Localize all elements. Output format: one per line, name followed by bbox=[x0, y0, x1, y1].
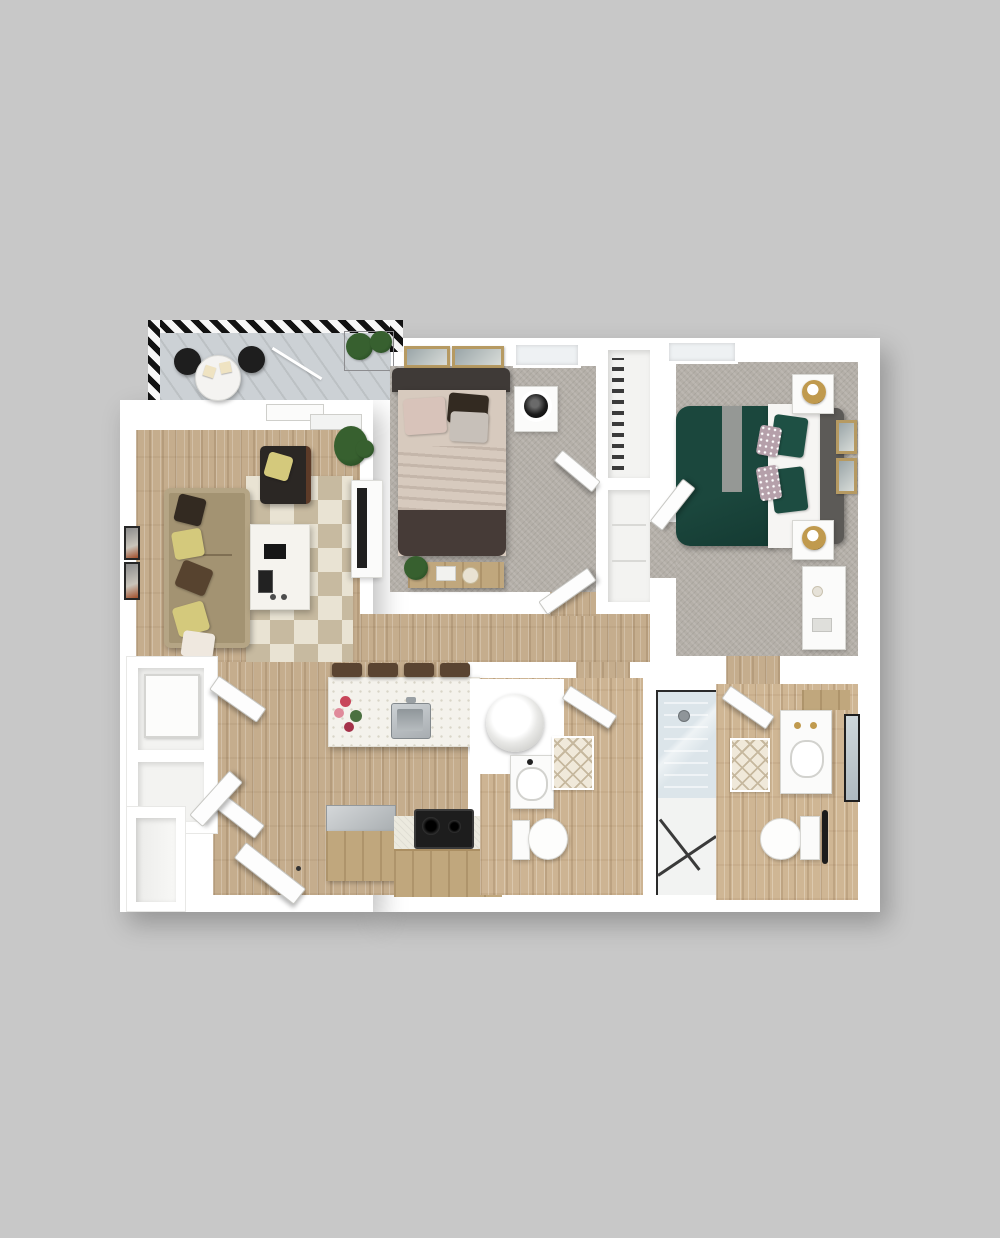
washer-dryer bbox=[486, 694, 544, 752]
bathroom2-door-opening bbox=[726, 656, 780, 686]
bouquet-flower-2 bbox=[334, 708, 344, 718]
refrigerator-top bbox=[326, 805, 396, 833]
bedroom1-lamp bbox=[524, 394, 548, 418]
bar-stool-2 bbox=[368, 663, 398, 677]
bench-plant bbox=[404, 556, 428, 580]
bench-bowl bbox=[462, 567, 479, 584]
shower-entry-floor bbox=[656, 798, 718, 895]
living-plant-leaf bbox=[356, 440, 374, 458]
tv-console bbox=[351, 480, 383, 578]
bed1-foot-blanket bbox=[398, 510, 506, 556]
bedroom2-lamp-bottom bbox=[802, 526, 826, 550]
bed1-pillow-right bbox=[449, 411, 489, 443]
bar-stool-3 bbox=[404, 663, 434, 677]
bar-stool-1 bbox=[332, 663, 362, 677]
bedroom1-art-2 bbox=[452, 346, 504, 368]
planter-plant-2 bbox=[370, 331, 392, 353]
bathroom1-sink bbox=[516, 767, 548, 801]
planter-plant-1 bbox=[346, 333, 373, 360]
bedroom1-window bbox=[513, 342, 581, 368]
coffee-table-tablet bbox=[264, 544, 286, 559]
entry-door-handle bbox=[296, 866, 301, 871]
bathroom2-sink bbox=[790, 740, 824, 778]
island-sink-basin bbox=[397, 709, 423, 731]
coffee-table-phone bbox=[258, 570, 273, 593]
shower-head bbox=[678, 710, 690, 722]
coffee-table bbox=[250, 524, 310, 610]
bathroom2-shelf bbox=[802, 690, 850, 710]
cooktop-burner-1 bbox=[422, 817, 440, 835]
sofa-pillow-yellow-1 bbox=[171, 528, 205, 561]
table-setting-2 bbox=[219, 361, 232, 374]
bedroom2-art-2 bbox=[836, 458, 857, 494]
bouquet-greens bbox=[350, 710, 362, 722]
bench-books bbox=[436, 566, 456, 581]
balcony-chair-right bbox=[238, 346, 265, 373]
bathroom2-rug bbox=[730, 738, 770, 792]
bathroom1-rug bbox=[552, 736, 594, 790]
bar-stool-4 bbox=[440, 663, 470, 677]
closet-hanging-clothes bbox=[612, 358, 624, 470]
wall-art-left-1 bbox=[124, 526, 140, 560]
bathroom2-faucet-2 bbox=[810, 722, 817, 729]
coffee-table-knob-1 bbox=[270, 594, 276, 600]
bathroom1-faucet bbox=[527, 759, 533, 765]
apartment-floor-plan bbox=[118, 318, 884, 918]
towel-bar bbox=[822, 810, 828, 864]
toilet1-bowl bbox=[528, 818, 568, 860]
bedroom2-window bbox=[666, 340, 738, 364]
toilet2-bowl bbox=[760, 818, 802, 860]
bathroom2-faucet-1 bbox=[794, 722, 801, 729]
bouquet-flower-3 bbox=[344, 722, 354, 732]
bathroom2-mirror bbox=[844, 714, 860, 802]
toilet2-tank bbox=[800, 816, 820, 860]
wall-art-left-2 bbox=[124, 562, 140, 600]
balcony-railing-left bbox=[148, 320, 160, 400]
cooktop-burner-2 bbox=[448, 820, 461, 833]
floor-plan-scene bbox=[0, 0, 1000, 1238]
bedroom2-art-1 bbox=[836, 420, 857, 454]
closet-shelf-2 bbox=[612, 560, 646, 562]
bed1-duvet-folds bbox=[398, 446, 506, 510]
bed1-pillow-left bbox=[403, 397, 447, 436]
water-heater bbox=[144, 674, 200, 738]
refrigerator-body bbox=[326, 831, 394, 881]
bed1-headboard bbox=[392, 368, 510, 392]
bedroom2-door-opening bbox=[650, 522, 676, 578]
closet-shelf-1 bbox=[612, 524, 646, 526]
island-faucet bbox=[406, 697, 416, 703]
tv-screen bbox=[357, 488, 367, 568]
hallway-floor bbox=[360, 614, 650, 662]
walk-in-closet-lower bbox=[608, 490, 650, 602]
entry-closet-interior bbox=[136, 818, 176, 902]
bistro-table bbox=[195, 355, 241, 401]
bouquet-flower-1 bbox=[340, 696, 351, 707]
bedroom2-desk bbox=[802, 566, 846, 650]
desk-tray bbox=[812, 618, 832, 632]
bed2-gray-throw bbox=[722, 406, 742, 492]
coffee-table-knob-2 bbox=[281, 594, 287, 600]
desk-accessory bbox=[812, 586, 823, 597]
bedroom2-lamp-top bbox=[802, 380, 826, 404]
bedroom1-art-1 bbox=[404, 346, 450, 368]
